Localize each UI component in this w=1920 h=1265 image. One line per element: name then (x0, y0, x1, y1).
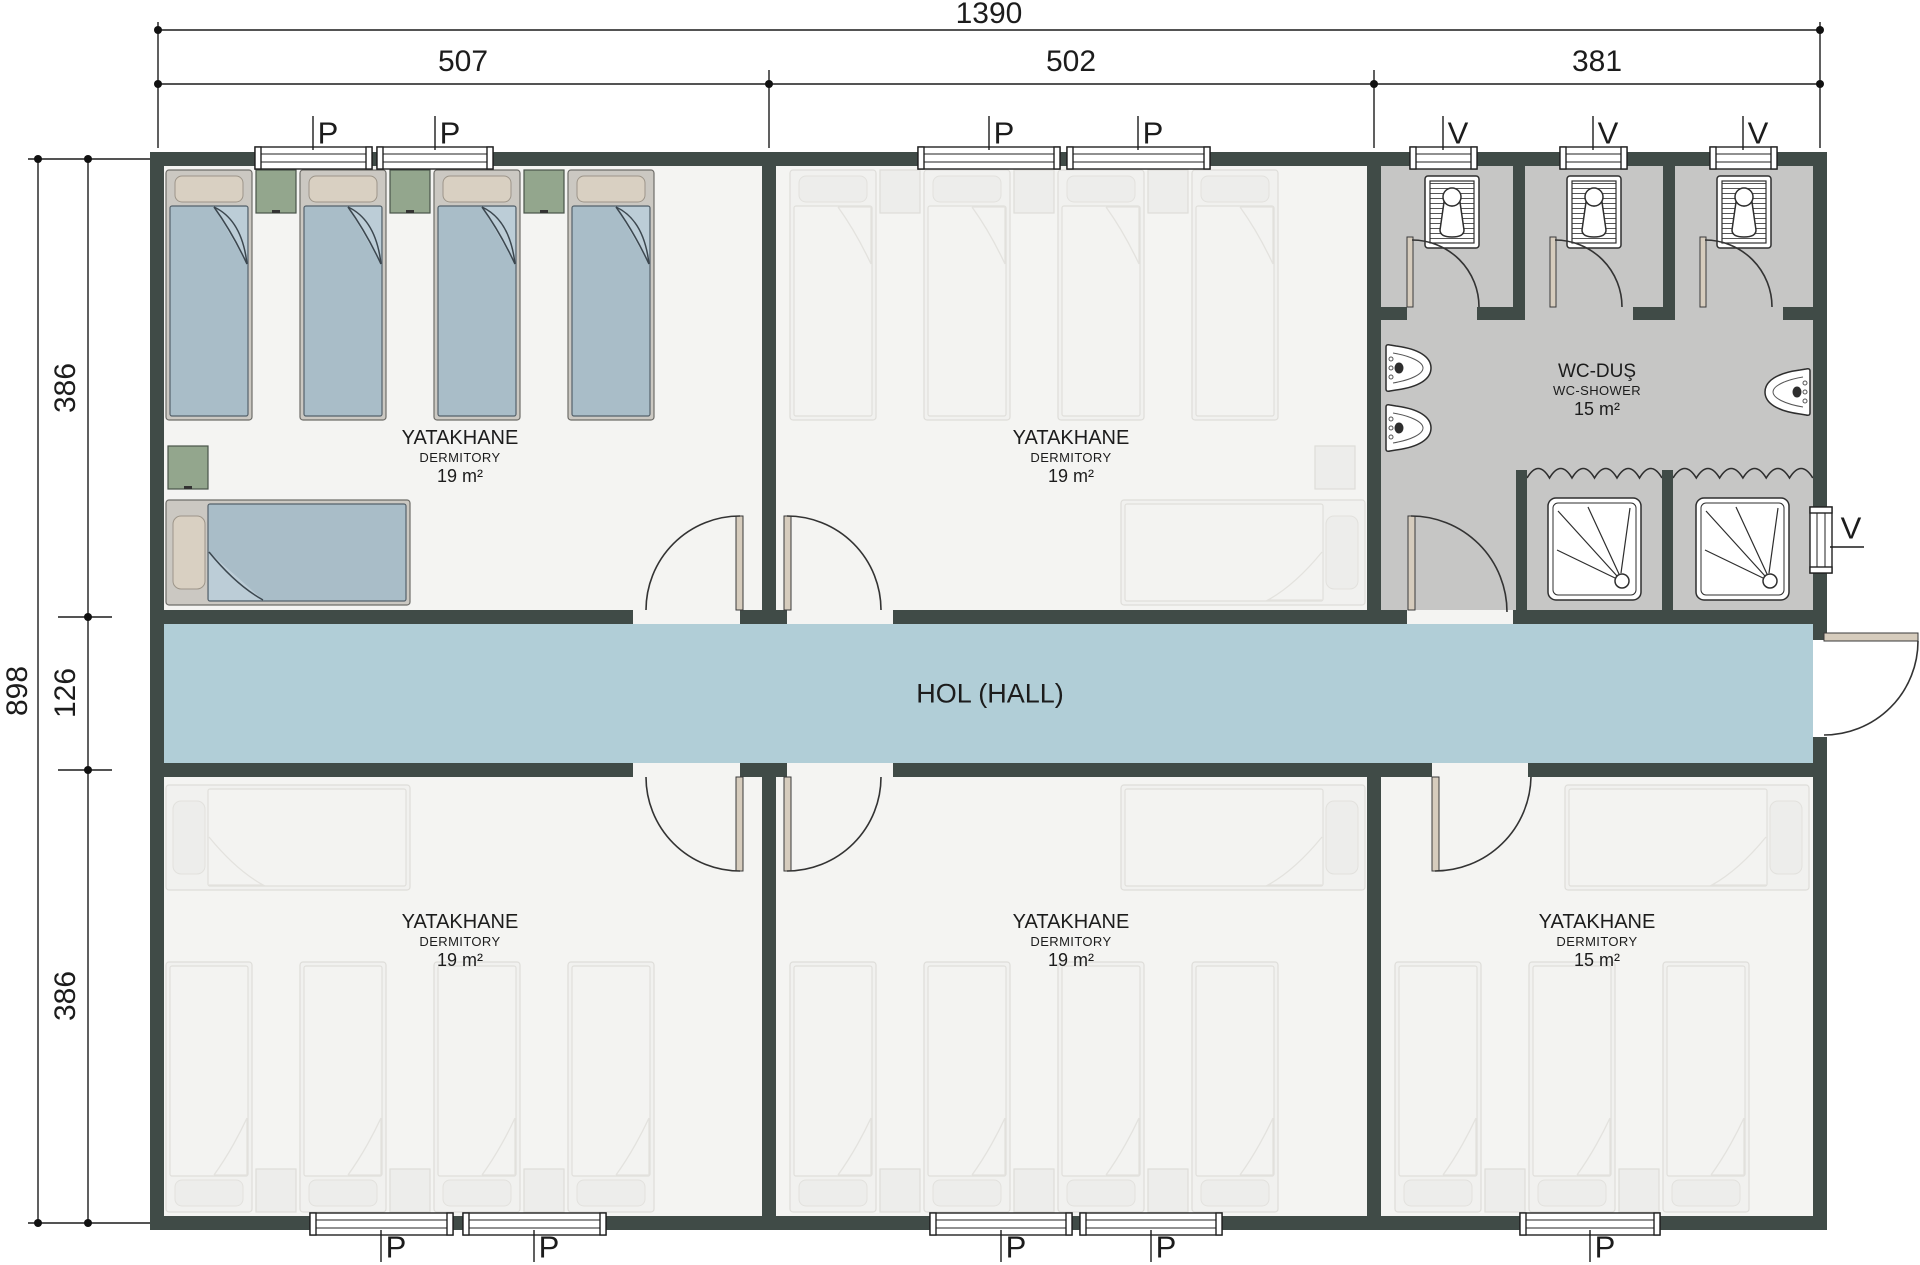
room-area: 15 m² (1539, 950, 1656, 971)
floor-plan-page: 1390 507 502 381 898 386 126 386 P P P P… (0, 0, 1920, 1265)
window-label-v: V (1448, 118, 1469, 149)
door-leaf (1432, 777, 1439, 871)
dim-width-seg-2: 502 (1046, 47, 1096, 77)
hall-label: HOL (HALL) (916, 681, 1064, 708)
door-leaf (1407, 237, 1413, 307)
window-label-p: P (1595, 1232, 1616, 1263)
room-type: DERMITORY (1539, 934, 1656, 950)
room-name: YATAKHANE (402, 427, 519, 450)
door-leaf (736, 516, 743, 610)
window-label-v: V (1841, 513, 1862, 544)
room-name: WC-DUŞ (1553, 360, 1641, 383)
door-swing (1824, 641, 1918, 735)
door-leaf (1408, 516, 1415, 610)
floor-plan-drawing (0, 0, 1920, 1265)
window-label-p: P (539, 1232, 560, 1263)
door-leaf (736, 777, 743, 871)
room-label-dorm-top-left: YATAKHANE DERMITORY 19 m² (402, 427, 519, 487)
room-name: YATAKHANE (402, 911, 519, 934)
window-p (377, 147, 493, 169)
room-area: 19 m² (402, 466, 519, 487)
dim-height-seg-3: 386 (51, 971, 81, 1021)
room-area: 19 m² (1013, 466, 1130, 487)
room-label-dorm-top-middle: YATAKHANE DERMITORY 19 m² (1013, 427, 1130, 487)
room-type: DERMITORY (1013, 450, 1130, 466)
window-label-p: P (386, 1232, 407, 1263)
door-leaf (1700, 237, 1706, 307)
squat-toilet-icon (1717, 176, 1771, 248)
room-label-dorm-bottom-left: YATAKHANE DERMITORY 19 m² (402, 911, 519, 971)
room-type: WC-SHOWER (1553, 383, 1641, 399)
room-name: YATAKHANE (1013, 427, 1130, 450)
room-label-dorm-bottom-right: YATAKHANE DERMITORY 15 m² (1539, 911, 1656, 971)
window-p (1067, 147, 1210, 169)
dim-height-seg-2: 126 (51, 668, 81, 718)
room-area: 19 m² (402, 950, 519, 971)
window-label-p: P (1006, 1232, 1027, 1263)
window-label-p: P (318, 118, 339, 149)
window-p (918, 147, 1060, 169)
dim-width-seg-1: 507 (438, 47, 488, 77)
room-name: YATAKHANE (1539, 911, 1656, 934)
shower-tray-icon (1548, 498, 1641, 600)
room-type: DERMITORY (402, 450, 519, 466)
window-label-p: P (994, 118, 1015, 149)
room-label-dorm-bottom-middle: YATAKHANE DERMITORY 19 m² (1013, 911, 1130, 971)
door-leaf (1550, 237, 1556, 307)
room-label-wc-shower: WC-DUŞ WC-SHOWER 15 m² (1553, 360, 1641, 420)
window-label-p: P (1156, 1232, 1177, 1263)
room-area: 15 m² (1553, 399, 1641, 420)
door-leaf (1824, 633, 1918, 641)
dim-height-total: 898 (3, 666, 33, 716)
squat-toilet-icon (1567, 176, 1621, 248)
window-label-v: V (1598, 118, 1619, 149)
room-type: DERMITORY (402, 934, 519, 950)
room-name: YATAKHANE (1013, 911, 1130, 934)
window-label-p: P (440, 118, 461, 149)
room-type: DERMITORY (1013, 934, 1130, 950)
door-leaf (784, 516, 791, 610)
room-area: 19 m² (1013, 950, 1130, 971)
window-p (255, 147, 372, 169)
squat-toilet-icon (1425, 176, 1479, 248)
window-v (1810, 507, 1832, 573)
window-label-v: V (1748, 118, 1769, 149)
shower-tray-icon (1696, 498, 1789, 600)
dim-height-seg-1: 386 (51, 363, 81, 413)
door-leaf (784, 777, 791, 871)
window-label-p: P (1143, 118, 1164, 149)
dim-width-total: 1390 (956, 0, 1023, 29)
dim-width-seg-3: 381 (1572, 47, 1622, 77)
